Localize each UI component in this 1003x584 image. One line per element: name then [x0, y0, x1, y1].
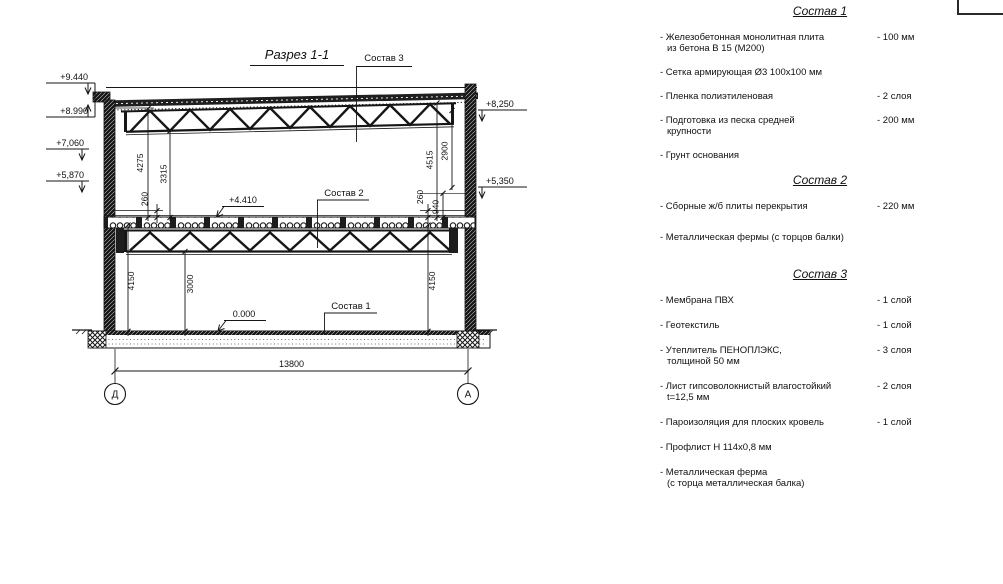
- right-wall: [465, 84, 476, 346]
- elevation-5350: +5,350: [486, 176, 514, 186]
- item-text-2: (с торца металлическая балка): [660, 478, 877, 489]
- section-drawing: Разрез 1-1 Состав 3 Состав 2 Состав 1 +9…: [0, 0, 660, 584]
- list-2-header: Состав 2: [660, 175, 980, 187]
- item-qty: - 100 мм: [877, 32, 1000, 54]
- elevation-4410: +4.410: [217, 195, 265, 217]
- item-text: - Профлист Н 114х0,8 мм: [660, 442, 877, 453]
- dim-260-left: 260: [140, 192, 150, 206]
- dim-3315: 3315: [159, 164, 169, 183]
- dim-4275: 4275: [135, 153, 145, 172]
- axis-label-a: А: [465, 390, 472, 401]
- list-1-items: - Железобетонная монолитная плитаиз бето…: [660, 32, 1000, 161]
- list-item: - Пленка полиэтиленовая - 2 слоя: [660, 91, 1000, 102]
- item-text: - Металлическая фермы (с торцов балки): [660, 232, 877, 243]
- dim-13800: 13800: [279, 359, 304, 369]
- item-text: - Подготовка из песка средней: [660, 115, 877, 126]
- item-text: - Лист гипсоволокнистый влагостойкий: [660, 381, 877, 392]
- item-text-2: крупности: [660, 126, 877, 137]
- list-item: - Металлическая ферма(с торца металличес…: [660, 467, 1000, 489]
- item-text-2: толщиной 50 мм: [660, 356, 877, 367]
- list-2-items: - Сборные ж/б плиты перекрытия - 220 мм …: [660, 201, 1000, 243]
- list-item: - Мембрана ПВХ - 1 слой: [660, 295, 1000, 306]
- elevation-5870: +5,870: [56, 170, 84, 180]
- elevation-8250: +8,250: [486, 99, 514, 109]
- item-text: - Пленка полиэтиленовая: [660, 91, 877, 102]
- list-item: - Сборные ж/б плиты перекрытия - 220 мм: [660, 201, 1000, 212]
- callout-1-label: Состав 1: [331, 301, 370, 312]
- item-text: - Утеплитель ПЕНОПЛЭКС,: [660, 345, 877, 356]
- elevation-8990: +8.990: [60, 106, 88, 116]
- elevation-marks-left: +9.440 +8.990 +7,060 +5,870: [46, 72, 95, 192]
- item-text: - Пароизоляция для плоских кровель: [660, 417, 877, 428]
- axis-label-d: Д: [112, 390, 119, 401]
- list-1-header: Состав 1: [660, 6, 980, 18]
- callout-2-label: Состав 2: [324, 188, 363, 199]
- list-item: - Пароизоляция для плоских кровель - 1 с…: [660, 417, 1000, 428]
- list-3-items: - Мембрана ПВХ - 1 слой - Геотекстиль - …: [660, 295, 1000, 489]
- callout-3-label: Состав 3: [364, 53, 403, 64]
- item-qty: - 2 слоя: [877, 381, 1000, 403]
- section-title: Разрез 1-1: [265, 47, 329, 62]
- list-item: - Железобетонная монолитная плитаиз бето…: [660, 32, 1000, 54]
- list-item: - Металлическая фермы (с торцов балки): [660, 232, 1000, 243]
- elevation-0000: 0.000: [218, 309, 266, 331]
- dimensions-lower: 4150 3000 4150: [126, 223, 438, 337]
- item-qty: - 3 слоя: [877, 345, 1000, 367]
- dim-940: 940: [431, 200, 441, 214]
- item-text: - Железобетонная монолитная плита: [660, 32, 877, 43]
- dim-4150-left: 4150: [126, 271, 136, 290]
- callout-sostav1: Состав 1: [324, 301, 377, 335]
- span-dimension: 13800: [112, 349, 472, 383]
- dim-4150-right: 4150: [427, 271, 437, 290]
- blueprint-page: Разрез 1-1 Состав 3 Состав 2 Состав 1 +9…: [0, 0, 1003, 584]
- list-item: - Профлист Н 114х0,8 мм: [660, 442, 1000, 453]
- dim-4515: 4515: [425, 150, 435, 169]
- dim-2900: 2900: [440, 141, 450, 160]
- elevation-marks-right: +8,250 +5,350: [478, 99, 527, 198]
- elevation-9440: +9.440: [60, 72, 88, 82]
- composition-lists: Состав 1 - Железобетонная монолитная пли…: [660, 2, 1000, 503]
- floor-truss: [116, 228, 458, 255]
- drawing-title: Разрез 1-1: [250, 47, 344, 66]
- dim-3000: 3000: [185, 274, 195, 293]
- item-text: - Геотекстиль: [660, 320, 877, 331]
- list-item: - Подготовка из песка среднейкрупности -…: [660, 115, 1000, 137]
- list-item: - Утеплитель ПЕНОПЛЭКС,толщиной 50 мм - …: [660, 345, 1000, 367]
- item-text: - Мембрана ПВХ: [660, 295, 877, 306]
- item-text: - Металлическая ферма: [660, 467, 877, 478]
- item-qty: - 200 мм: [877, 115, 1000, 137]
- item-qty: - 1 слой: [877, 417, 1000, 428]
- item-qty: - 220 мм: [877, 201, 1000, 212]
- item-qty: - 2 слоя: [877, 91, 1000, 102]
- item-text: - Сборные ж/б плиты перекрытия: [660, 201, 877, 212]
- list-1-title: Состав 1: [793, 4, 847, 18]
- elevation-7060: +7,060: [56, 138, 84, 148]
- item-qty: - 1 слой: [877, 295, 1000, 306]
- list-item: - Грунт основания: [660, 150, 1000, 161]
- item-text-2: t=12,5 мм: [660, 392, 877, 403]
- item-text-2: из бетона В 15 (М200): [660, 43, 877, 54]
- mid-floor-slab: [104, 216, 475, 229]
- item-qty: - 1 слой: [877, 320, 1000, 331]
- list-item: - Геотекстиль - 1 слой: [660, 320, 1000, 331]
- item-text: - Сетка армирующая Ø3 100х100 мм: [660, 67, 877, 78]
- list-item: - Сетка армирующая Ø3 100х100 мм: [660, 67, 1000, 78]
- ground-slab: [72, 330, 497, 348]
- elevation-0000-label: 0.000: [233, 309, 256, 319]
- dimensions-upper: 4275 3315 260 4515 2900 260: [114, 101, 466, 224]
- list-3-title: Состав 3: [793, 267, 847, 281]
- list-2-title: Состав 2: [793, 173, 847, 187]
- elevation-4410-label: +4.410: [229, 195, 257, 205]
- list-item: - Лист гипсоволокнистый влагостойкийt=12…: [660, 381, 1000, 403]
- axis-bubbles: Д А: [105, 384, 479, 405]
- item-text: - Грунт основания: [660, 150, 877, 161]
- dim-260-right: 260: [415, 190, 425, 204]
- list-3-header: Состав 3: [660, 269, 980, 281]
